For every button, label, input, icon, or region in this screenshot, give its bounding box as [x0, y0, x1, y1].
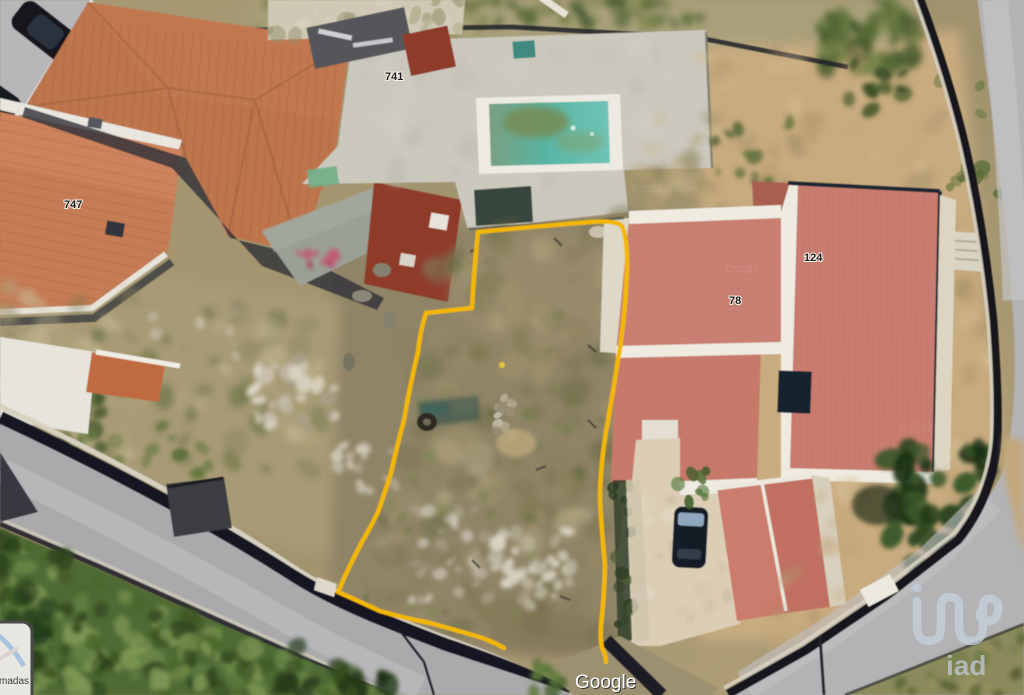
svg-text:iad: iad: [946, 650, 986, 681]
svg-text:Google: Google: [575, 672, 636, 693]
svg-text:© 2025: © 2025: [900, 422, 933, 433]
svg-text:Google: Google: [726, 264, 759, 275]
svg-text:747: 747: [64, 199, 82, 211]
svg-text:124: 124: [804, 252, 823, 264]
svg-text:78: 78: [729, 295, 741, 307]
svg-text:© 2025 Google: © 2025 Google: [630, 184, 698, 195]
svg-text:741: 741: [385, 71, 403, 83]
svg-text:madas: madas: [0, 676, 29, 687]
